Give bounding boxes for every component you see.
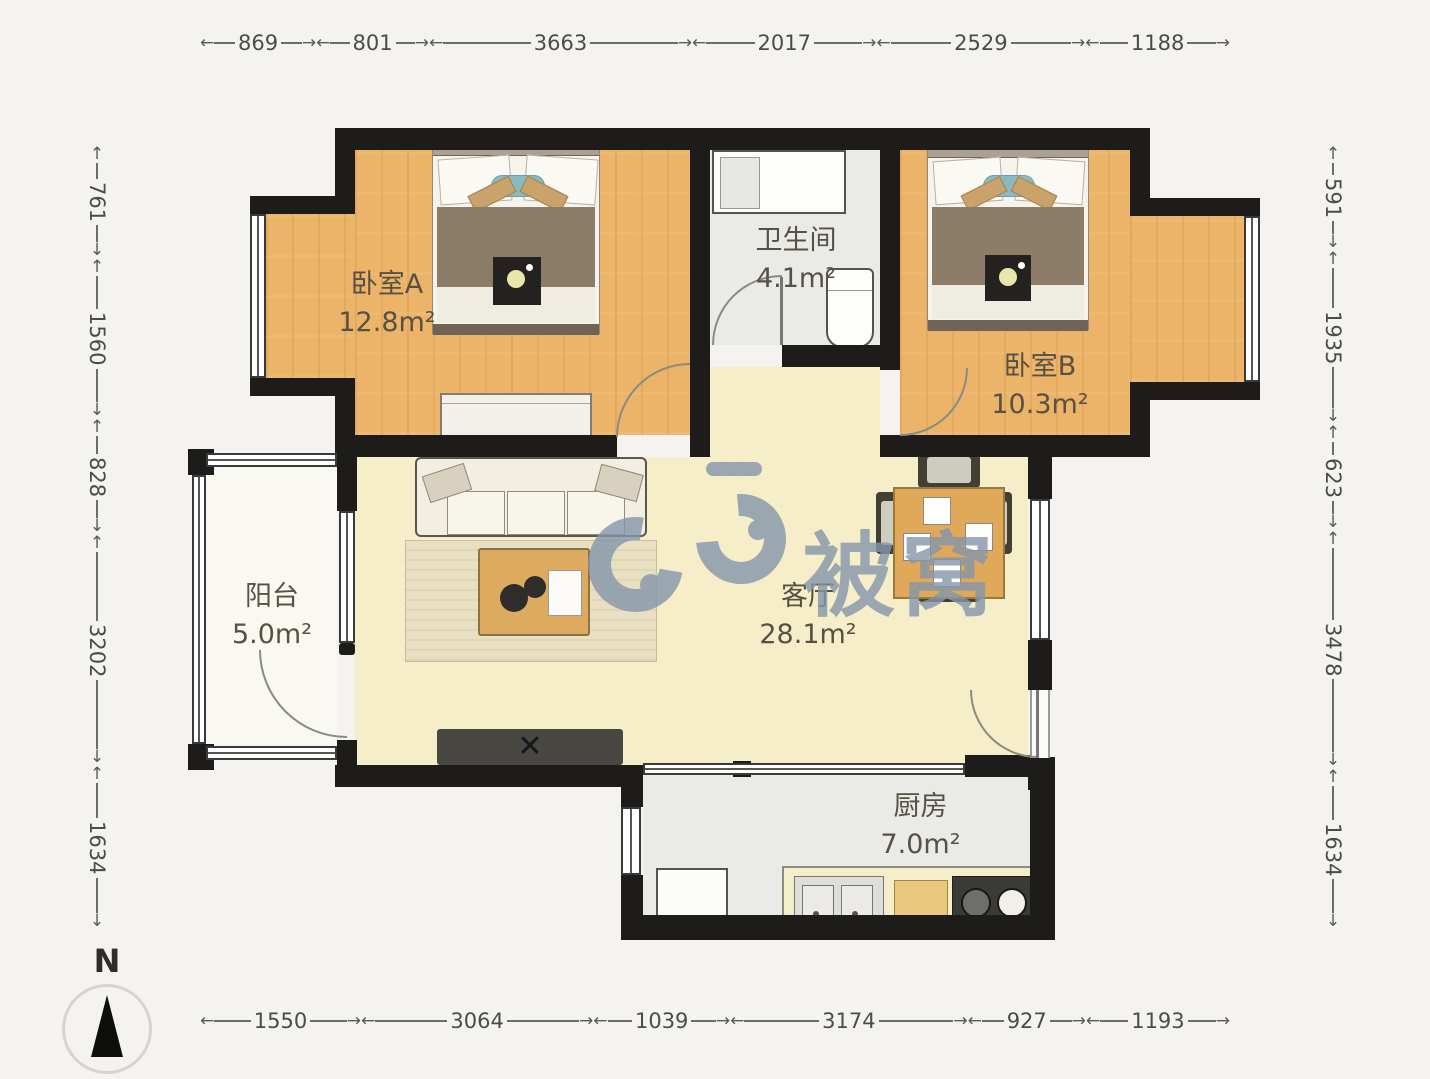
coffee-table xyxy=(478,548,590,636)
kettle-icon xyxy=(524,576,546,598)
dimension-segment: 801 xyxy=(316,31,429,55)
wall xyxy=(880,435,1150,457)
dimension-segment: 3174 xyxy=(730,1009,967,1033)
dimension-value: 761 xyxy=(85,179,109,225)
wall xyxy=(1146,382,1260,400)
bathroom-vanity xyxy=(712,150,846,214)
room-area: 10.3m² xyxy=(955,386,1125,424)
floor-plan-canvas: ✕ xyxy=(0,0,1430,1079)
dimension-value: 828 xyxy=(85,454,109,500)
room-name: 阳台 xyxy=(212,578,332,616)
room-area: 7.0m² xyxy=(838,826,1003,864)
dimension-strip-left: 761 1560 828 3202 1634 xyxy=(80,146,114,930)
wall xyxy=(1030,757,1055,940)
room-name: 卫生间 xyxy=(712,222,880,260)
lamp-icon xyxy=(999,268,1017,286)
dimension-segment: 3663 xyxy=(429,31,692,55)
dimension-value: 1634 xyxy=(85,818,109,877)
dimension-segment: 1550 xyxy=(200,1009,361,1033)
window xyxy=(206,453,337,467)
dimension-strip-right: 591 1935 623 3478 1634 xyxy=(1316,146,1350,930)
dimension-value: 3064 xyxy=(447,1009,506,1033)
dimension-segment: 3478 xyxy=(1321,531,1345,769)
room-label-kitchen: 厨房 7.0m² xyxy=(838,788,1003,864)
dimension-segment: 1039 xyxy=(593,1009,730,1033)
wall xyxy=(335,765,643,787)
hallway-floor xyxy=(710,367,880,457)
wall xyxy=(335,128,1150,150)
dimension-segment: 927 xyxy=(968,1009,1086,1033)
dimension-value: 1634 xyxy=(1321,820,1345,879)
wall xyxy=(621,787,643,807)
window xyxy=(206,746,337,760)
dimension-value: 927 xyxy=(1004,1009,1050,1033)
room-name: 卧室A xyxy=(312,266,462,304)
window xyxy=(250,214,266,378)
dimension-value: 1560 xyxy=(85,309,109,368)
entry-door-leaf xyxy=(1036,690,1039,758)
dimension-value: 3202 xyxy=(85,621,109,680)
dimension-segment: 2017 xyxy=(692,31,876,55)
bed-tray xyxy=(493,257,541,305)
compass: N xyxy=(52,942,162,1074)
window xyxy=(192,475,206,744)
wall xyxy=(880,150,900,370)
wall xyxy=(690,150,710,457)
window xyxy=(1244,216,1260,382)
magazine xyxy=(548,570,582,616)
wall xyxy=(1130,382,1150,457)
wall xyxy=(335,150,355,214)
dimension-value: 2529 xyxy=(951,31,1010,55)
window xyxy=(339,511,355,643)
dimension-segment: 1188 xyxy=(1085,31,1230,55)
kitchen-pass-through xyxy=(643,763,965,775)
dimension-segment: 828 xyxy=(85,419,109,535)
dimension-strip-bottom: 1550 3064 1039 3174 927 1193 xyxy=(200,1004,1230,1038)
room-label-bedroom-a: 卧室A 12.8m² xyxy=(312,266,462,342)
dimension-value: 591 xyxy=(1321,175,1345,221)
compass-north-label: N xyxy=(52,942,162,980)
dimension-strip-top: 869 801 3663 2017 2529 1188 xyxy=(200,26,1230,60)
window xyxy=(621,807,641,875)
wall xyxy=(782,345,900,367)
wall xyxy=(337,740,357,767)
dimension-segment: 3064 xyxy=(361,1009,593,1033)
wall xyxy=(337,449,357,511)
dimension-segment: 1935 xyxy=(1321,251,1345,425)
dimension-segment: 623 xyxy=(1321,425,1345,531)
sink-basin xyxy=(720,157,760,209)
sofa-cushion xyxy=(447,491,505,535)
dimension-segment: 1634 xyxy=(1321,769,1345,930)
room-name: 卧室B xyxy=(955,348,1125,386)
dimension-segment: 2529 xyxy=(876,31,1085,55)
dimension-value: 2017 xyxy=(755,31,814,55)
burner-icon xyxy=(961,888,991,918)
lamp-icon xyxy=(507,270,525,288)
wall xyxy=(250,196,338,214)
watermark-logo-icon xyxy=(569,498,701,630)
wall xyxy=(621,915,1035,940)
dimension-value: 1935 xyxy=(1321,308,1345,367)
dresser xyxy=(440,393,592,437)
dimension-segment: 761 xyxy=(85,146,109,259)
dimension-value: 1550 xyxy=(251,1009,310,1033)
dimension-value: 1039 xyxy=(632,1009,691,1033)
sofa-cushion xyxy=(507,491,565,535)
dimension-segment: 591 xyxy=(1321,146,1345,251)
room-label-balcony: 阳台 5.0m² xyxy=(212,578,332,654)
watermark-text: 被窝 xyxy=(803,502,999,635)
wall xyxy=(965,755,1030,777)
dimension-segment: 869 xyxy=(200,31,316,55)
dimension-value: 801 xyxy=(350,31,396,55)
dimension-value: 1193 xyxy=(1128,1009,1187,1033)
dimension-segment: 1634 xyxy=(85,766,109,930)
room-name: 厨房 xyxy=(838,788,1003,826)
dimension-value: 1188 xyxy=(1128,31,1187,55)
bedroom-b-bay-floor xyxy=(1130,216,1244,382)
bed-footboard xyxy=(928,320,1088,331)
dimension-segment: 1193 xyxy=(1086,1009,1230,1033)
watermark: 被窝 xyxy=(588,462,1068,622)
wall xyxy=(250,378,338,396)
tv-stand: ✕ xyxy=(437,729,623,765)
dimension-segment: 3202 xyxy=(85,535,109,766)
dimension-value: 869 xyxy=(235,31,281,55)
watermark-logo-icon xyxy=(678,476,805,603)
dimension-value: 3478 xyxy=(1321,620,1345,679)
room-label-bedroom-b: 卧室B 10.3m² xyxy=(955,348,1125,424)
room-label-bathroom: 卫生间 4.1m² xyxy=(712,222,880,298)
room-area: 4.1m² xyxy=(712,260,880,298)
dimension-segment: 1560 xyxy=(85,259,109,420)
bed xyxy=(927,144,1089,330)
compass-needle-icon xyxy=(91,995,123,1057)
compass-circle xyxy=(62,984,152,1074)
wall xyxy=(335,435,617,457)
dimension-value: 3663 xyxy=(531,31,590,55)
bed-tray xyxy=(985,255,1031,301)
dimension-value: 3174 xyxy=(819,1009,878,1033)
wall xyxy=(1146,198,1260,216)
burner-icon xyxy=(997,888,1027,918)
wall xyxy=(1028,640,1052,690)
room-area: 5.0m² xyxy=(212,616,332,654)
room-area: 12.8m² xyxy=(312,304,462,342)
dimension-value: 623 xyxy=(1321,455,1345,501)
